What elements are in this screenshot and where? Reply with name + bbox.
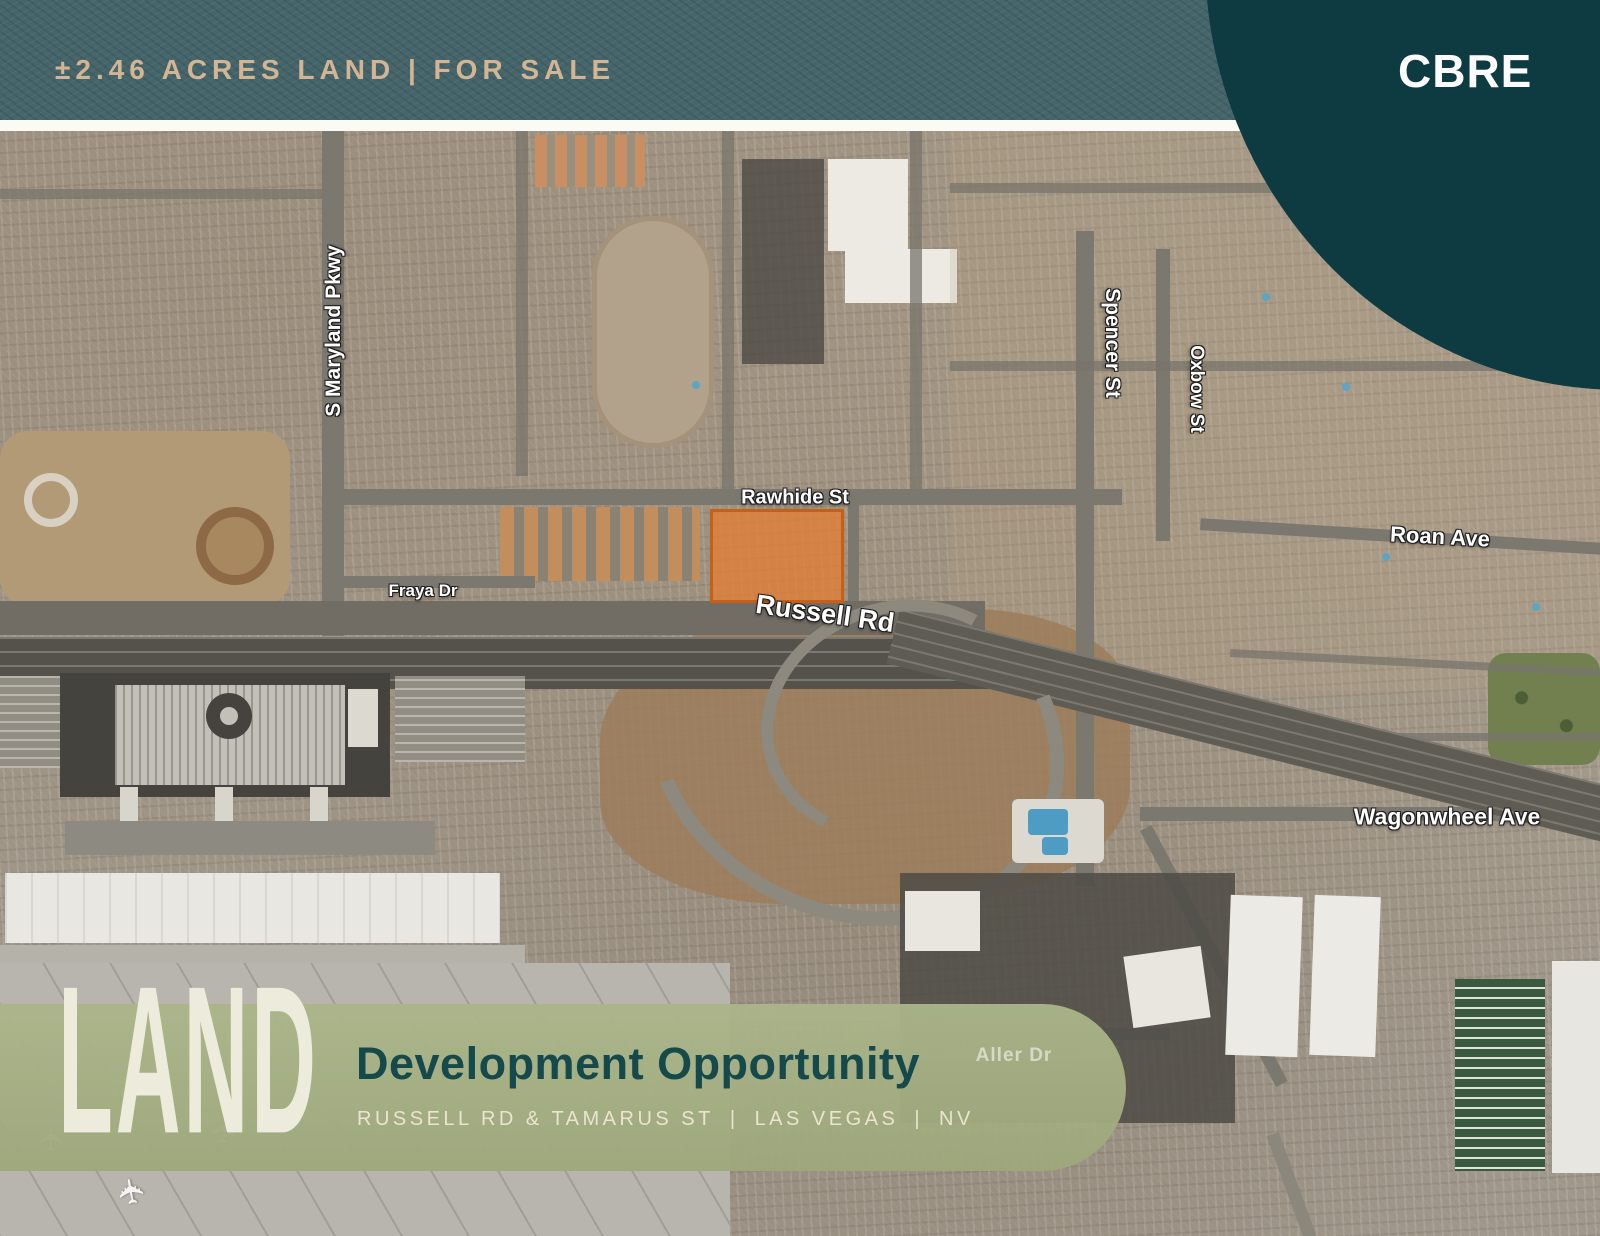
street-label-roan-ave: Roan Ave xyxy=(1389,521,1490,552)
park-ring xyxy=(24,473,78,527)
street-label-s-maryland-pkwy: S Maryland Pkwy xyxy=(322,245,346,417)
backyard-pool xyxy=(1262,293,1270,301)
airport-concourse xyxy=(65,821,435,855)
backyard-pool xyxy=(692,381,700,389)
street-label-oxbow-st: Oxbow St xyxy=(1185,345,1207,433)
pool xyxy=(1028,809,1068,835)
pool xyxy=(1042,837,1068,855)
backyard-pool xyxy=(1382,553,1390,561)
road-bottom-right xyxy=(1267,1132,1317,1236)
solar-panel-field xyxy=(1455,979,1545,1171)
school-building-wing xyxy=(845,249,957,303)
road-vertical-3 xyxy=(910,131,922,491)
location-city: LAS VEGAS xyxy=(755,1108,899,1130)
townhome-rows xyxy=(500,507,700,581)
sale-title: ±2.46 ACRES LAND | FOR SALE xyxy=(55,54,615,86)
street-label-fraya-dr: Fraya Dr xyxy=(389,581,458,601)
backyard-pool xyxy=(1532,603,1540,611)
street-label-rawhide-st: Rawhide St xyxy=(741,487,849,510)
cbre-logo: CBRE xyxy=(1398,44,1532,98)
road-oxbow-st xyxy=(1156,249,1170,541)
road-top-west xyxy=(0,189,322,199)
park-mound xyxy=(196,507,274,585)
school-building xyxy=(828,159,908,251)
hotel-building xyxy=(1123,946,1210,1028)
flyer-page: ±2.46 ACRES LAND | FOR SALE xyxy=(0,0,1600,1236)
location-cross-streets: RUSSELL RD & TAMARUS ST xyxy=(357,1108,714,1130)
subject-parcel-highlight xyxy=(710,509,844,603)
dirt-oval-track xyxy=(592,216,714,448)
street-label-aller-dr: Aller Dr xyxy=(976,1045,1053,1067)
street-label-spencer-st: Spencer St xyxy=(1100,288,1124,398)
airport-outbuilding xyxy=(348,689,378,747)
divider: | xyxy=(914,1108,923,1130)
street-label-wagonwheel-ave: Wagonwheel Ave xyxy=(1354,804,1541,831)
warehouse xyxy=(1309,895,1381,1057)
divider: | xyxy=(730,1108,739,1130)
school-parking-lot xyxy=(742,159,824,364)
garage-helix-ramp xyxy=(206,693,252,739)
parking-lot-east xyxy=(395,676,525,762)
water-park xyxy=(1012,799,1104,863)
airport-terminal xyxy=(5,873,500,943)
road-spencer-st xyxy=(1076,231,1094,886)
backyard-pool xyxy=(1342,383,1350,391)
road-rawhide-st xyxy=(330,489,1122,505)
strip-mall xyxy=(905,891,980,951)
road-vertical-1 xyxy=(516,131,528,476)
land-logo: LAND xyxy=(58,956,319,1166)
footer-location-line: RUSSELL RD & TAMARUS ST|LAS VEGAS|NV xyxy=(357,1108,974,1131)
footer-title: Development Opportunity xyxy=(356,1038,920,1090)
road-vertical-2 xyxy=(722,131,734,493)
location-state: NV xyxy=(939,1108,974,1130)
condo-rows xyxy=(535,135,645,187)
warehouse xyxy=(1552,961,1600,1173)
warehouse xyxy=(1225,895,1303,1057)
